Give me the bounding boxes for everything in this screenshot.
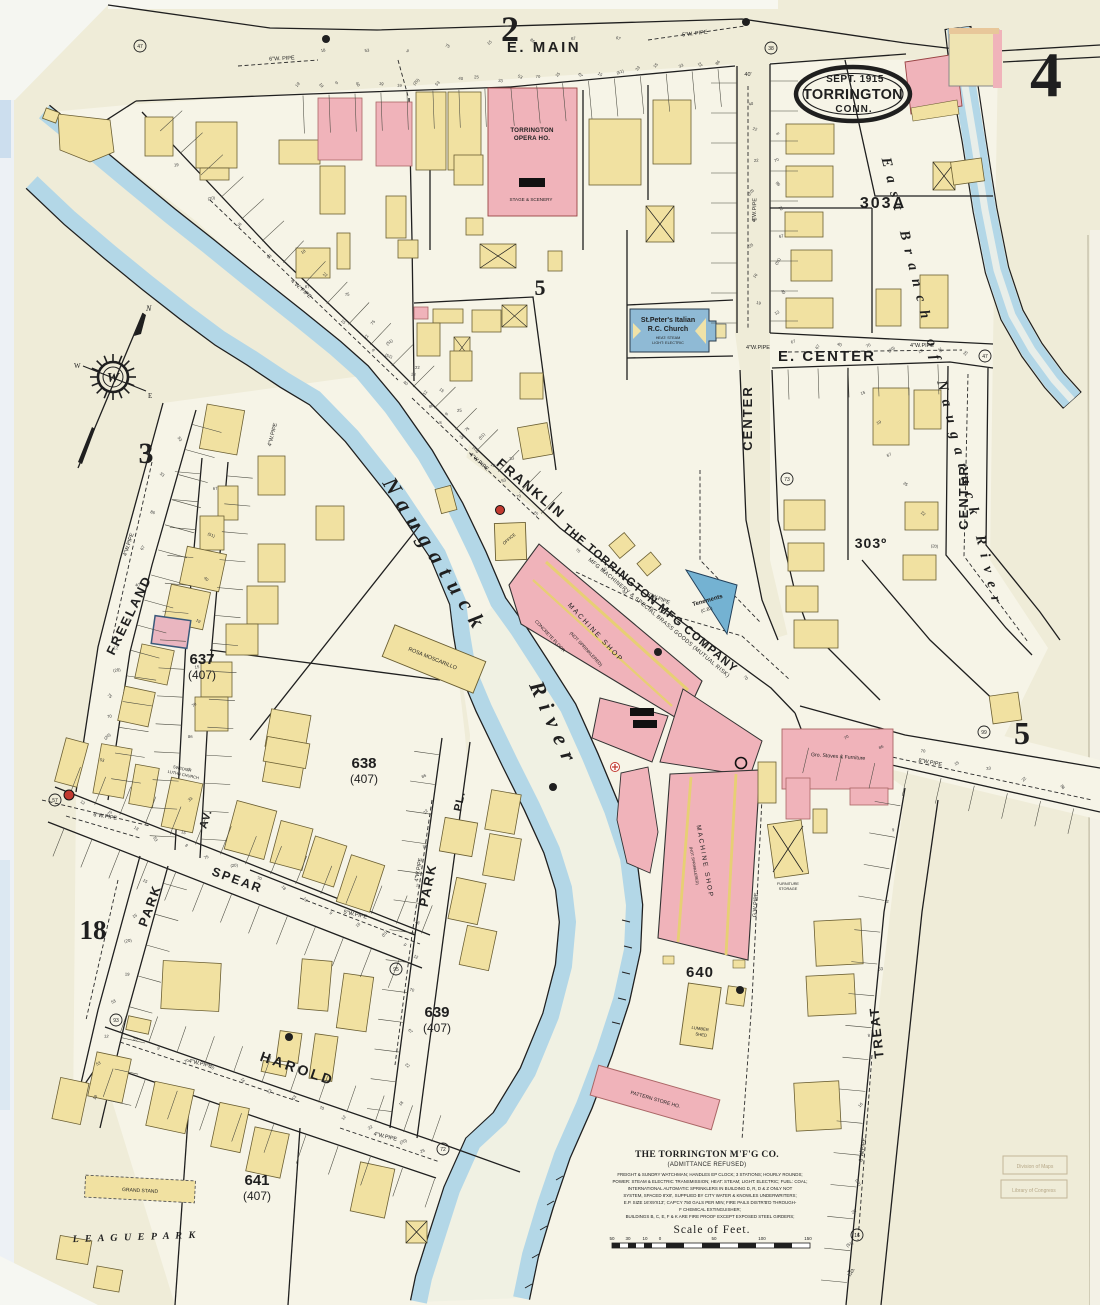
svg-text:73: 73 xyxy=(784,477,790,483)
svg-text:SEPT. 1915: SEPT. 1915 xyxy=(826,74,884,85)
svg-text:50: 50 xyxy=(609,1236,615,1241)
svg-text:Division of Maps: Division of Maps xyxy=(1017,1164,1054,1170)
svg-text:(ADMITTANCE REFUSED): (ADMITTANCE REFUSED) xyxy=(668,1162,747,1168)
svg-text:72: 72 xyxy=(440,1147,446,1153)
svg-text:E. MAIN: E. MAIN xyxy=(507,39,581,56)
svg-text:3: 3 xyxy=(139,437,154,470)
svg-text:E. CENTER: E. CENTER xyxy=(778,348,876,365)
svg-text:47: 47 xyxy=(137,44,143,50)
svg-text:10: 10 xyxy=(642,1236,648,1241)
svg-text:STAGE & SCENERY: STAGE & SCENERY xyxy=(510,197,553,202)
svg-text:641: 641 xyxy=(244,1172,269,1189)
svg-text:47: 47 xyxy=(982,354,988,360)
svg-text:N: N xyxy=(145,304,152,313)
svg-text:16: 16 xyxy=(854,1233,860,1239)
svg-text:FURNITURE: FURNITURE xyxy=(777,882,799,886)
svg-text:25: 25 xyxy=(133,1036,138,1041)
svg-text:40': 40' xyxy=(847,1269,854,1275)
svg-text:(407): (407) xyxy=(188,668,216,682)
svg-text:R.C. Church: R.C. Church xyxy=(648,326,688,333)
svg-text:57: 57 xyxy=(52,798,58,804)
svg-text:5: 5 xyxy=(1014,715,1030,751)
svg-text:(407): (407) xyxy=(423,1021,451,1035)
svg-text:HEAT: STEAM: HEAT: STEAM xyxy=(656,336,681,340)
svg-text:95: 95 xyxy=(393,967,399,973)
svg-text:303º: 303º xyxy=(855,535,887,551)
svg-text:(407): (407) xyxy=(243,1189,271,1203)
svg-text:E: E xyxy=(148,392,152,400)
svg-text:637: 637 xyxy=(189,651,214,668)
svg-text:150: 150 xyxy=(804,1236,812,1241)
svg-text:303A: 303A xyxy=(860,195,906,212)
svg-text:40': 40' xyxy=(744,72,751,78)
svg-text:30: 30 xyxy=(625,1236,631,1241)
svg-text:St.Peter's Italian: St.Peter's Italian xyxy=(641,317,695,324)
svg-text:4: 4 xyxy=(1030,39,1062,110)
svg-text:640: 640 xyxy=(686,964,714,981)
svg-text:100: 100 xyxy=(758,1236,766,1241)
svg-text:12: 12 xyxy=(114,645,119,650)
svg-text:4"W.PIPE: 4"W.PIPE xyxy=(910,343,934,349)
svg-text:99: 99 xyxy=(981,730,987,736)
svg-text:(407): (407) xyxy=(350,772,378,786)
svg-text:638: 638 xyxy=(351,755,376,772)
svg-text:93: 93 xyxy=(113,1018,119,1024)
svg-text:FREIGHT & SUNDRY WATCHMAN; HAN: FREIGHT & SUNDRY WATCHMAN; HANDLES EP CL… xyxy=(617,1172,802,1177)
svg-text:639: 639 xyxy=(424,1004,449,1021)
svg-text:POWER: STEAM & ELECTRIC TRANSM: POWER: STEAM & ELECTRIC TRANSMISSION; HE… xyxy=(612,1179,807,1184)
svg-text:TORRINGTON: TORRINGTON xyxy=(803,87,903,103)
svg-text:4"W.PIPE: 4"W.PIPE xyxy=(746,345,770,351)
svg-text:TORRINGTON: TORRINGTON xyxy=(510,127,554,134)
svg-text:38: 38 xyxy=(768,46,774,52)
svg-text:25: 25 xyxy=(474,74,479,79)
svg-text:CONN.: CONN. xyxy=(835,104,872,115)
svg-text:OPERA HO.: OPERA HO. xyxy=(514,135,550,142)
svg-text:CENTER: CENTER xyxy=(740,385,755,450)
svg-text:Scale of Feet.: Scale of Feet. xyxy=(674,1224,751,1236)
svg-text:W: W xyxy=(74,362,81,370)
svg-text:INTERNATIONAL AUTOMATIC SPRINK: INTERNATIONAL AUTOMATIC SPRINKLERS IN BU… xyxy=(628,1186,793,1191)
svg-text:SYSTEM, SPACED 8'X8', SUPPLIED: SYSTEM, SPACED 8'X8', SUPPLIED BY CITY W… xyxy=(623,1193,796,1198)
svg-text:86: 86 xyxy=(188,734,193,739)
svg-text:18: 18 xyxy=(80,915,107,945)
svg-text:(20): (20) xyxy=(931,543,940,549)
svg-text:4"W.PIPE: 4"W.PIPE xyxy=(752,198,759,222)
svg-text:5: 5 xyxy=(535,275,546,300)
svg-text:70: 70 xyxy=(536,74,541,79)
svg-text:LIGHT: ELECTRIC: LIGHT: ELECTRIC xyxy=(652,341,684,345)
svg-text:(20): (20) xyxy=(230,862,238,868)
svg-text:THE TORRINGTON M'F'G CO.: THE TORRINGTON M'F'G CO. xyxy=(635,1150,779,1160)
svg-text:E.P. SIZE 16'X9'X13'; CAP'CY 7: E.P. SIZE 16'X9'X13'; CAP'CY 750 GALS PE… xyxy=(624,1200,797,1205)
svg-text:STORAGE: STORAGE xyxy=(779,887,798,891)
svg-text:Library of Congress: Library of Congress xyxy=(1012,1188,1056,1194)
svg-text:12: 12 xyxy=(884,899,889,904)
svg-text:50: 50 xyxy=(711,1236,717,1241)
svg-text:F CHEMICAL EXTINGUISHER;: F CHEMICAL EXTINGUISHER; xyxy=(679,1207,741,1212)
svg-text:BUILDINGS B, C, E, F & K ARE F: BUILDINGS B, C, E, F & K ARE FIRE PROOF … xyxy=(626,1214,795,1219)
